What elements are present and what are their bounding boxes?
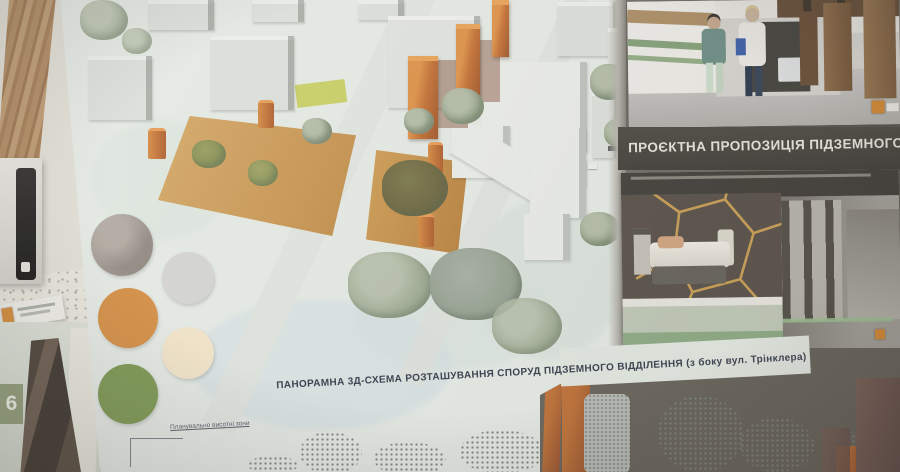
entrance-shaft — [148, 128, 166, 159]
room-number: 6 — [6, 392, 18, 416]
person-leg — [755, 66, 762, 96]
wooden-door — [863, 0, 896, 99]
material-swatch-orange — [98, 288, 158, 348]
logo-icon — [875, 329, 885, 339]
entrance-shaft — [258, 100, 274, 128]
tree — [122, 28, 152, 54]
logo-label — [887, 103, 899, 111]
tree — [442, 88, 484, 124]
bed-base — [652, 265, 726, 284]
material-swatch-olive — [98, 364, 158, 424]
person-leg — [706, 63, 713, 93]
building — [530, 158, 586, 218]
building — [524, 214, 570, 260]
logo-icon — [872, 100, 885, 113]
tree — [248, 160, 278, 186]
tree — [192, 140, 226, 168]
building-edge — [822, 428, 850, 472]
tree-silhouette — [460, 430, 544, 472]
building — [252, 0, 304, 22]
glass-doors — [781, 200, 843, 321]
tree — [492, 298, 562, 354]
material-swatch-cream — [162, 327, 214, 379]
blue-folder — [736, 38, 746, 55]
building — [88, 56, 152, 120]
textured-building — [584, 394, 630, 472]
dense-tree-mass — [382, 160, 448, 216]
corridor-floor — [846, 209, 900, 320]
tree — [302, 118, 332, 144]
person-leg — [745, 66, 752, 96]
right-column-heading-band: ПРОЄКТНА ПРОПОЗИЦІЯ ПІДЗЕМНОГО — [618, 127, 900, 170]
building-edge — [856, 378, 900, 472]
tree-silhouette — [658, 396, 744, 472]
tree — [80, 0, 128, 40]
wooden-door — [823, 3, 852, 91]
building — [148, 0, 214, 30]
material-swatch-concrete — [91, 214, 153, 276]
proposed-tower — [492, 0, 509, 57]
room-number-placard: 6 — [0, 384, 23, 424]
annotation-leader-line — [130, 438, 183, 467]
building — [210, 36, 294, 110]
lawn-patch — [295, 79, 347, 108]
wooden-door — [799, 11, 818, 85]
sign-text-line — [20, 309, 50, 317]
medical-monitor — [634, 229, 652, 275]
map-annotation: Планувально висотні зони — [170, 420, 250, 431]
entrance-shaft — [418, 214, 434, 247]
tree-silhouette — [300, 432, 362, 472]
person-teal-jacket — [702, 29, 727, 65]
corridor-photo — [627, 0, 900, 128]
photo-of-presentation-board: 6 — [0, 0, 900, 472]
underground-ward-render — [621, 169, 900, 354]
blanket — [658, 236, 684, 248]
material-swatch-lightgray — [162, 252, 214, 304]
tree-silhouette — [248, 456, 298, 472]
tree-silhouette — [740, 418, 814, 472]
tree — [348, 252, 432, 318]
tree-silhouette — [374, 442, 446, 472]
car — [588, 164, 597, 169]
right-column-heading: ПРОЄКТНА ПРОПОЗИЦІЯ ПІДЗЕМНОГО — [618, 125, 900, 156]
person-leg — [716, 63, 723, 93]
wall-device-button — [21, 262, 30, 272]
tree — [404, 108, 434, 134]
